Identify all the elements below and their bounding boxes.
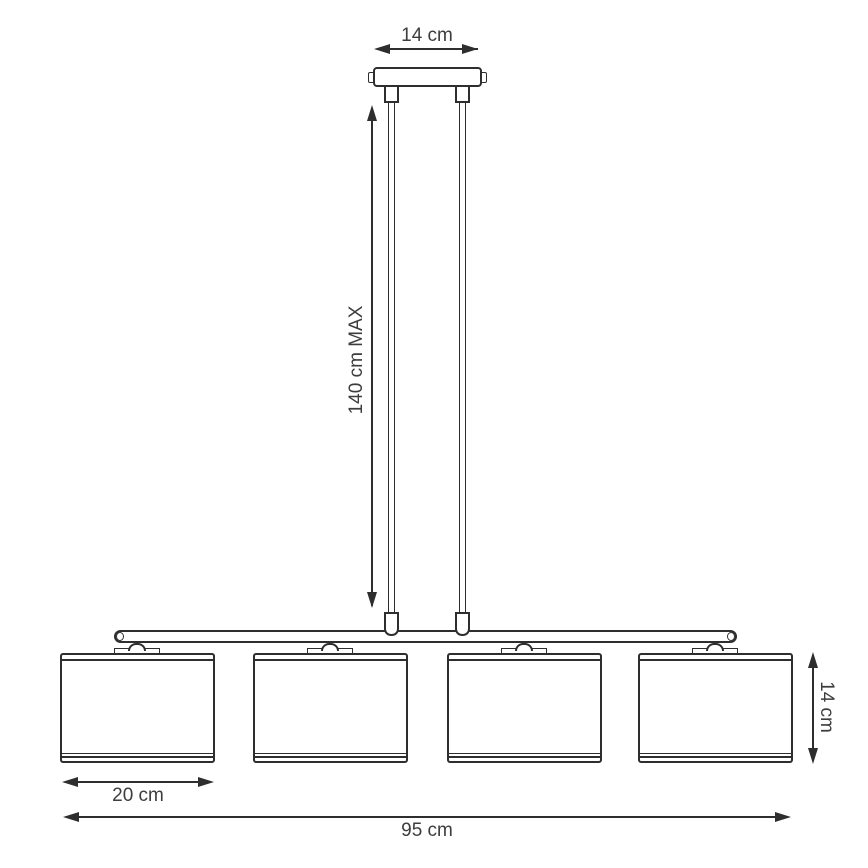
shade-holder-dome <box>128 643 146 651</box>
shade-holder-dome <box>515 643 533 651</box>
shade-bottom-rim <box>255 753 406 755</box>
rod-ferrule-left <box>384 612 399 636</box>
lamp-dimension-diagram: 14 cm 140 cm MAX 14 cm 20 cm 95 cm <box>0 0 868 868</box>
dimension-line <box>66 816 788 818</box>
rod-ferrule-right <box>455 612 470 636</box>
shade-bottom-rim <box>449 753 600 755</box>
arrowhead-right-icon <box>462 44 478 54</box>
dimension-shade-width-label: 20 cm <box>62 785 214 807</box>
dimension-line <box>65 781 211 783</box>
bar-endcap-right <box>727 632 735 641</box>
shade-bottom-rim <box>62 753 213 755</box>
lampshade-1 <box>60 653 215 763</box>
shade-bottom-rim <box>449 756 600 758</box>
shade-bottom-rim <box>255 756 406 758</box>
lampshade-3 <box>447 653 602 763</box>
shade-bottom-rim <box>62 756 213 758</box>
shade-bottom-rim <box>640 753 791 755</box>
shade-top-rim <box>62 659 213 661</box>
support-bar <box>114 630 737 643</box>
shade-top-rim <box>640 659 791 661</box>
shade-bottom-rim <box>640 756 791 758</box>
shade-holder-dome <box>706 643 724 651</box>
bar-endcap-left <box>116 632 124 641</box>
shade-holder-dome <box>321 643 339 651</box>
suspension-hanger-right <box>455 85 470 103</box>
shade-top-rim <box>449 659 600 661</box>
dimension-line <box>812 656 814 760</box>
lampshade-2 <box>253 653 408 763</box>
dimension-total-width-label: 95 cm <box>66 820 788 842</box>
suspension-rod-left <box>388 103 395 613</box>
dimension-max-drop-label: 140 cm MAX <box>346 260 368 460</box>
lampshade-4 <box>638 653 793 763</box>
dimension-shade-height-label: 14 cm <box>815 647 837 767</box>
arrowhead-left-icon <box>374 44 390 54</box>
shade-top-rim <box>255 659 406 661</box>
arrowhead-down-icon <box>808 748 818 764</box>
ceiling-canopy <box>373 67 482 87</box>
suspension-hanger-left <box>384 85 399 103</box>
dimension-line <box>371 108 373 606</box>
arrowhead-down-icon <box>367 592 377 608</box>
arrowhead-up-icon <box>367 105 377 121</box>
arrowhead-up-icon <box>808 652 818 668</box>
suspension-rod-right <box>459 103 466 613</box>
